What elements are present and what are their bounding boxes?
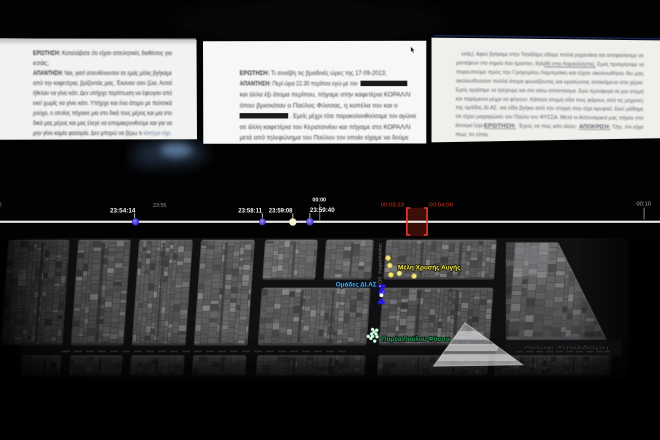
svg-text:πως το είπα.: πως το είπα. (455, 132, 489, 138)
svg-text:00:10: 00:10 (636, 201, 651, 207)
svg-text:Αστυνομικό Τμήμα: Αστυνομικό Τμήμα (455, 122, 483, 129)
svg-text:Έχεις να πεις κάτι άλλο;: Έχεις να πεις κάτι άλλο; (518, 123, 577, 131)
svg-text:δικά μας μέρος και μας έλεγε ν: δικά μας μέρος και μας έλεγε να απομακρυ… (33, 120, 172, 127)
svg-text:όπου βρισκόταν ο Παύλος Φύσσας: όπου βρισκόταν ο Παύλος Φύσσας, η κοπέλα… (240, 102, 399, 109)
svg-text:σε άλλη καφετέρια του Κερατσιν: σε άλλη καφετέρια του Κερατσινίου και πή… (240, 124, 411, 131)
svg-text:μετά από τηλεφώνημα του Παύλου: μετά από τηλεφώνημα του Παύλου τον οποίο… (240, 135, 409, 142)
svg-text:23:58:11: 23:58:11 (238, 207, 262, 214)
svg-text:ΑΠΑΝΤΗΣΗ: Ναι, γιατί απευθύνον: ΑΠΑΝΤΗΣΗ: Ναι, γιατί απευθύνονταν σε εμά… (33, 70, 172, 77)
svg-text:50: 50 (0, 203, 2, 209)
svg-text:Όχι, ότι είχα: Όχι, ότι είχα (612, 123, 644, 130)
svg-text:23:54:14: 23:54:14 (110, 207, 136, 214)
svg-text:ήθελαν να γίνει κάτι. Δεν υπήρ: ήθελαν να γίνει κάτι. Δεν υπήρχε περίπτω… (33, 90, 173, 97)
svg-text:. Εμείς μέχρι τότε παρακολουθο: . Εμείς μέχρι τότε παρακολουθούσαμε τον … (290, 113, 417, 120)
svg-text:23:55: 23:55 (153, 203, 166, 209)
svg-text:ΕΡΩΤΗΣΗ:: ΕΡΩΤΗΣΗ: (484, 123, 516, 129)
svg-text:Οδ. Κεφαλληνίας: Οδ. Κεφαλληνίας (378, 242, 384, 284)
svg-text:ΑΠΟΚΡΙΣΗ:: ΑΠΟΚΡΙΣΗ: (579, 124, 611, 130)
svg-text:Ομάδες ΔΙ.ΑΣ: Ομάδες ΔΙ.ΑΣ (336, 281, 377, 288)
svg-text:23:59:40: 23:59:40 (310, 207, 335, 214)
svg-text:ΑΠΑΝΤΗΣΗ: Περί ώρα 22.30 περί: ΑΠΑΝΤΗΣΗ: Περί ώρα 22.30 περίπου εγώ με … (240, 82, 358, 88)
svg-text:00:04:06: 00:04:06 (429, 203, 453, 209)
svg-text:Παρέα Παύλου Φύσσα: Παρέα Παύλου Φύσσα (382, 335, 450, 343)
svg-text:23:59:08: 23:59:08 (269, 207, 293, 214)
svg-text:Λεωφ Τσαλδάρη: Λεωφ Τσαλδάρη (524, 344, 610, 351)
svg-text:εκεί χωρίς να γίνει κάτι. Υπήρ: εκεί χωρίς να γίνει κάτι. Υπήρχε και ένα… (33, 100, 172, 107)
svg-text:00:00: 00:00 (312, 198, 326, 204)
svg-text:και άλλα έξι άτομα περίπου, πή: και άλλα έξι άτομα περίπου, πήγαμε στην … (240, 92, 411, 99)
svg-text:Μέλη Χρυσής Αυγής: Μέλη Χρυσής Αυγής (398, 264, 461, 272)
svg-text:από την καφετέρια, βρίζοντάς μ: από την καφετέρια, βρίζοντάς μας. Έκαναν… (33, 80, 173, 87)
svg-text:ρούχα, ο οποίος πήγαινε μια στ: ρούχα, ο οποίος πήγαινε μια στο δικά του… (33, 110, 173, 117)
svg-text:00:03:23: 00:03:23 (381, 203, 404, 209)
svg-text:εσάς;: εσάς; (33, 60, 49, 67)
svg-text:ΕΡΩΤΗΣΗ: Καταλάβατε ότι είχαν: ΕΡΩΤΗΣΗ: Καταλάβατε ότι είχαν απειλητικέ… (33, 50, 172, 57)
svg-text:μην γίνει καμία φασαρία. Δεν μ: μην γίνει καμία φασαρία. Δεν μπορώ να ξέ… (33, 130, 172, 137)
svg-text:ΕΡΩΤΗΣΗ: Τι συνέβη τις βραδιν: ΕΡΩΤΗΣΗ: Τι συνέβη τις βραδινές ώρες της… (240, 70, 387, 77)
